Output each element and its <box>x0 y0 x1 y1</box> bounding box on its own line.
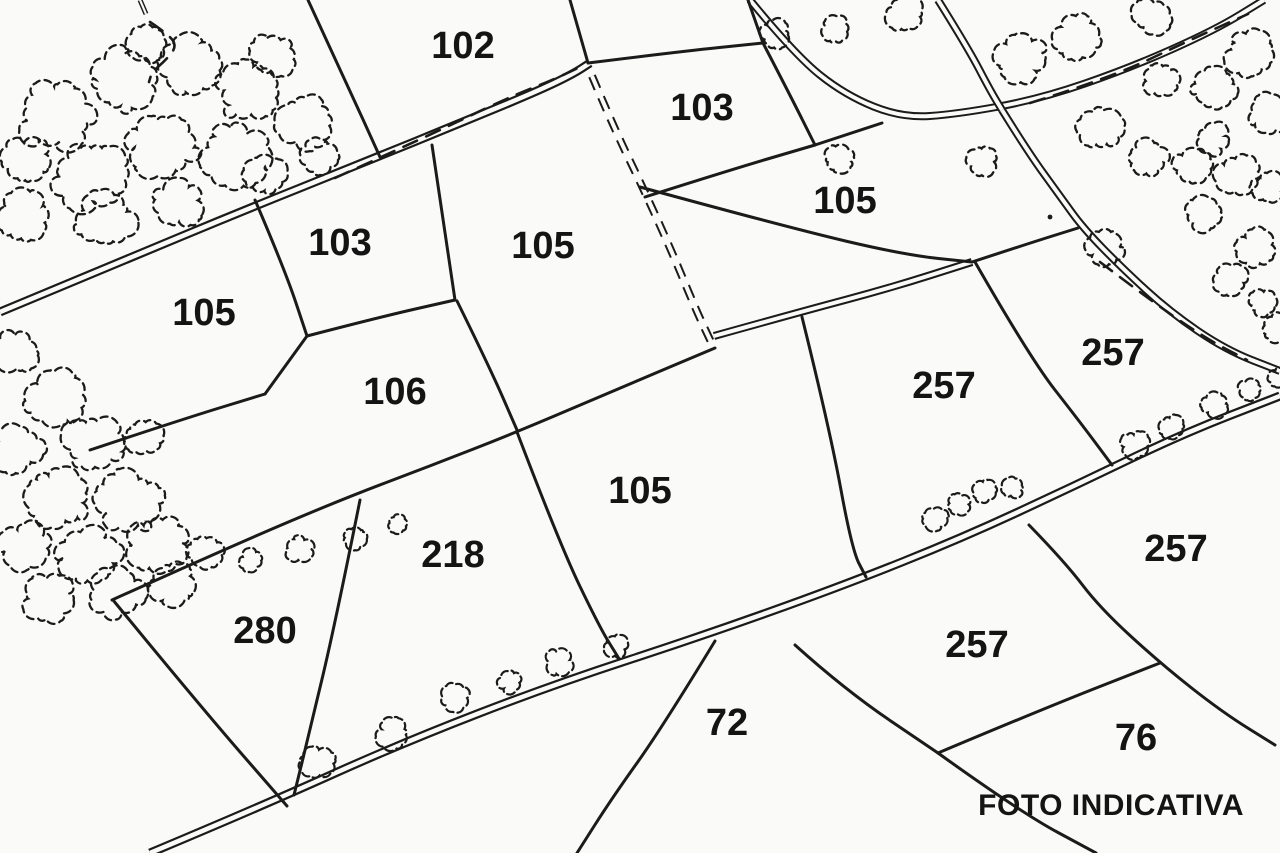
parcel-label: 105 <box>172 292 235 334</box>
parcel-label: 76 <box>1115 717 1157 759</box>
survey-dot <box>1048 215 1053 220</box>
map-caption: FOTO INDICATIVA <box>978 789 1244 823</box>
parcel-label: 105 <box>608 470 671 512</box>
parcel-label: 106 <box>363 371 426 413</box>
cadastral-plan: 1021031051031051052572571061052572182802… <box>0 0 1280 853</box>
parcel-label: 257 <box>912 365 975 407</box>
parcel-label: 102 <box>431 25 494 67</box>
parcel-label: 72 <box>706 702 748 744</box>
parcel-label: 103 <box>308 222 371 264</box>
parcel-label: 280 <box>233 610 296 652</box>
cadastral-map-drawing: 1021031051031051052572571061052572182802… <box>0 0 1280 853</box>
parcel-label: 257 <box>1144 528 1207 570</box>
parcel-label: 105 <box>813 180 876 222</box>
parcel-label: 257 <box>945 624 1008 666</box>
parcel-label: 103 <box>670 87 733 129</box>
parcel-label: 257 <box>1081 332 1144 374</box>
parcel-label: 218 <box>421 534 484 576</box>
parcel-label: 105 <box>511 225 574 267</box>
map-background <box>0 0 1280 853</box>
